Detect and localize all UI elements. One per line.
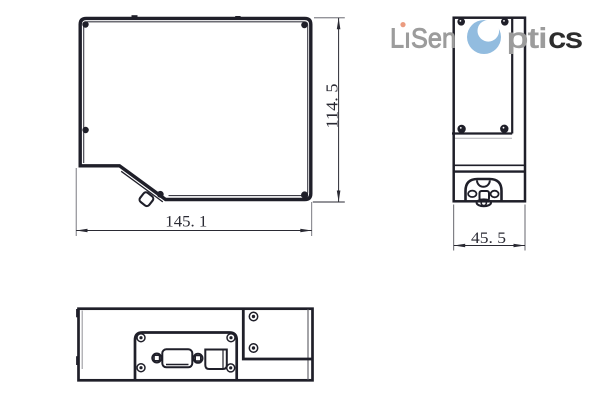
svg-text:114. 5: 114. 5 <box>322 84 341 129</box>
svg-text:145. 1: 145. 1 <box>165 214 207 231</box>
svg-text:pti: pti <box>507 23 547 54</box>
svg-text:LıSen: LıSen <box>390 23 456 54</box>
svg-text:cs: cs <box>549 23 583 54</box>
svg-text:45. 5: 45. 5 <box>471 230 506 247</box>
